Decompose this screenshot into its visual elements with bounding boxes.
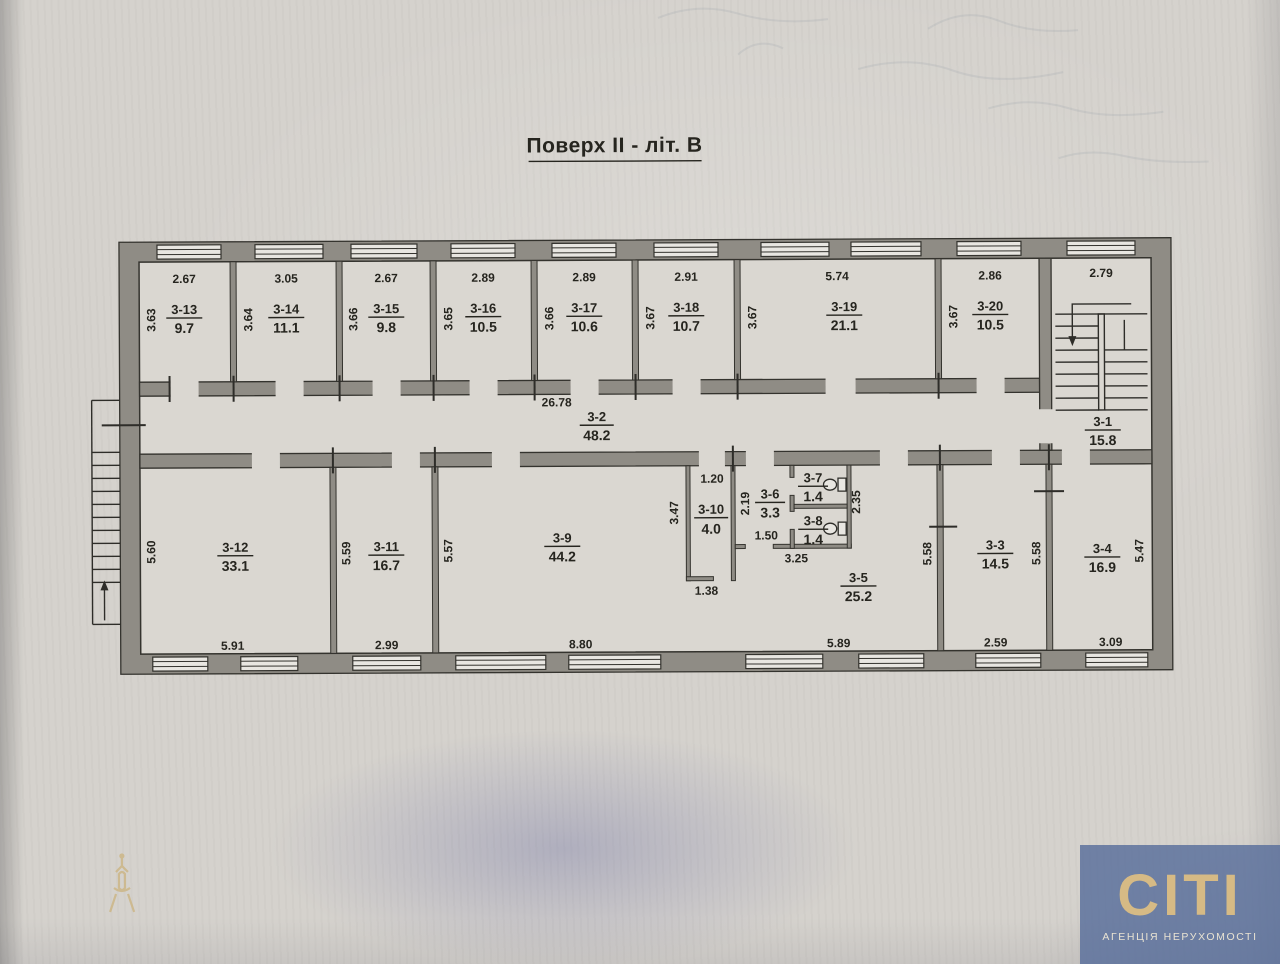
dim-width: 2.86 (978, 268, 1002, 282)
dim-height: 3.64 (241, 308, 255, 332)
room-id: 3-19 (831, 299, 857, 314)
dim-height: 3.65 (441, 307, 455, 331)
room-id: 3-11 (374, 539, 399, 554)
floorplan-scan: Поверх II - літ. В (0, 0, 1280, 964)
room-area: 9.8 (377, 319, 397, 335)
dim-height: 3.66 (346, 307, 360, 331)
dim-width: 2.89 (471, 271, 495, 285)
dim-width: 2.67 (172, 272, 196, 286)
agency-logo-subtitle: АГЕНЦІЯ НЕРУХОМОСТІ (1102, 931, 1257, 943)
dim-height: 3.63 (144, 308, 158, 332)
room-area: 10.5 (977, 316, 1005, 332)
external-stair (92, 400, 121, 624)
external-stairs-icon (92, 400, 121, 624)
dim-width: 3.05 (274, 271, 298, 285)
statue-of-liberty-icon (92, 852, 138, 922)
dim-width: 2.91 (674, 270, 698, 284)
room-id: 3-2 (587, 409, 606, 424)
dim-height: 3.47 (667, 501, 681, 525)
agency-logo-brand: СІТІ (1117, 867, 1243, 925)
room-area: 16.7 (373, 557, 401, 573)
dim-width-bottom: 2.59 (984, 635, 1008, 649)
dim-width-bottom: 1.50 (755, 528, 779, 542)
toilet-icon-3-7 (823, 478, 846, 491)
dim-width: 2.67 (374, 271, 398, 285)
room-id: 3-1 (1093, 414, 1112, 429)
dim-height-right: 2.35 (849, 490, 863, 514)
room-id: 3-5 (849, 570, 868, 585)
room-id: 3-18 (673, 300, 699, 315)
dim-height: 2.19 (738, 492, 752, 516)
room-id: 3-13 (171, 302, 197, 317)
room-area: 44.2 (549, 548, 577, 564)
dim-height-right: 5.47 (1132, 539, 1146, 563)
room-id: 3-7 (804, 470, 823, 485)
room-id: 3-14 (273, 301, 300, 316)
floorplan-drawing: Поверх II - літ. В (0, 0, 1280, 967)
dim-width-bottom: 5.91 (221, 639, 245, 653)
room-id: 3-12 (222, 540, 248, 555)
room-id: 3-15 (373, 301, 399, 316)
agency-logo: СІТІ АГЕНЦІЯ НЕРУХОМОСТІ (1080, 845, 1280, 964)
dim-height: 3.67 (745, 305, 759, 329)
dim-width-bottom: 3.09 (1099, 635, 1123, 649)
plan-title: Поверх II - літ. В (526, 134, 702, 162)
dim-width: 2.89 (572, 270, 596, 284)
room-area: 1.4 (803, 488, 823, 504)
dim-width-bottom: 2.99 (375, 638, 399, 652)
room-area: 11.1 (273, 319, 300, 335)
room-area: 14.5 (982, 555, 1010, 571)
room-area: 21.1 (831, 317, 859, 333)
dim-width-bottom: 5.89 (827, 636, 851, 650)
dim-height: 5.57 (441, 539, 455, 563)
room-area: 1.4 (803, 531, 823, 547)
dim-width-bottom: 1.38 (695, 584, 719, 598)
room-area: 3.3 (760, 504, 780, 520)
room-id: 3-4 (1093, 541, 1113, 556)
room-id: 3-6 (761, 486, 780, 501)
dim-width-top: 1.20 (700, 472, 724, 486)
room-area: 48.2 (583, 427, 611, 443)
room-area: 25.2 (845, 588, 873, 604)
external-stair-arrow-icon (100, 580, 108, 620)
dim-length: 26.78 (542, 395, 572, 409)
room-area: 4.0 (701, 521, 721, 537)
dim-width-bottom: 8.80 (569, 637, 593, 651)
scan-artifacts (658, 6, 1209, 164)
room-id: 3-20 (977, 298, 1003, 313)
room-area: 10.7 (673, 318, 701, 334)
room-id: 3-8 (804, 513, 823, 528)
dim-height: 3.66 (542, 306, 556, 330)
dim-height-right: 5.58 (1029, 541, 1043, 565)
dim-height: 3.67 (643, 306, 657, 330)
room-area: 9.7 (175, 320, 195, 336)
room-id: 3-3 (986, 537, 1005, 552)
room-id: 3-17 (571, 300, 597, 315)
room-id: 3-16 (470, 301, 496, 316)
dim-height: 5.59 (339, 541, 353, 565)
dim-width: 5.74 (825, 269, 849, 283)
room-area: 33.1 (222, 558, 250, 574)
plan-title-text: Поверх II - літ. В (526, 134, 702, 158)
dim-height: 3.67 (946, 305, 960, 329)
room-area: 16.9 (1089, 559, 1117, 575)
room-area: 10.5 (470, 319, 498, 335)
dim-width: 2.79 (1089, 266, 1113, 280)
room-id: 3-9 (553, 530, 572, 545)
room-area: 10.6 (571, 318, 599, 334)
dim-height: 5.60 (144, 540, 158, 564)
dim-width-bottom: 3.25 (785, 551, 809, 565)
room-area: 15.8 (1089, 432, 1117, 448)
dim-height-right: 5.58 (920, 542, 934, 566)
room-id: 3-10 (698, 502, 724, 517)
